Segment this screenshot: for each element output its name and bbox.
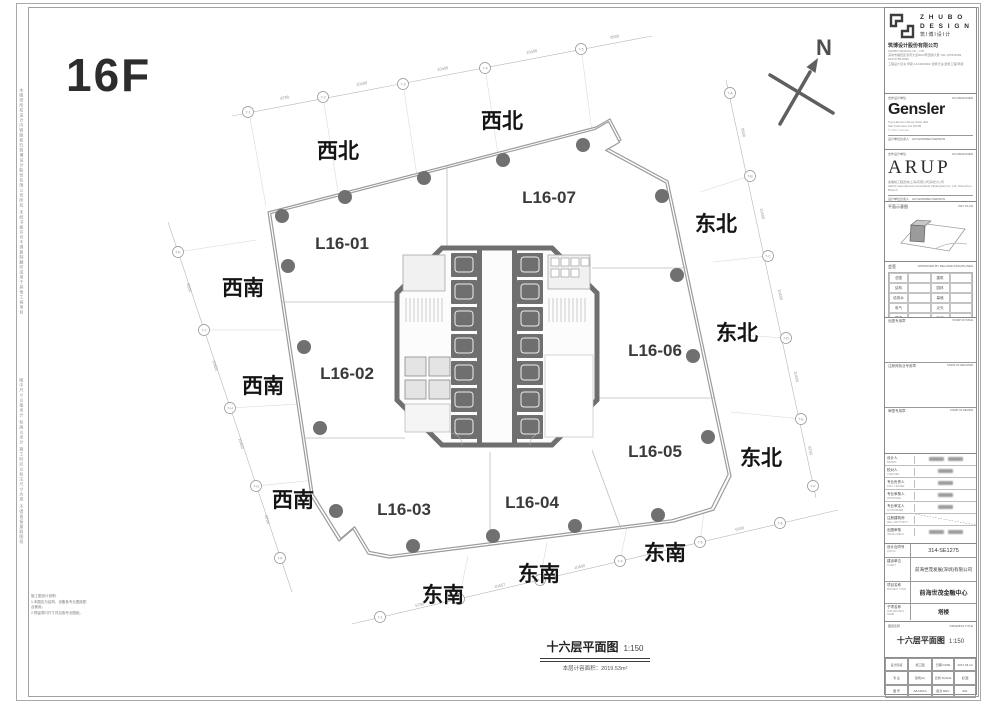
signoff-header: 会签 [888,264,896,270]
dimension-label: 10400 [526,48,539,55]
project-label-en: PROJECT TITLE [887,588,910,591]
core-room [403,255,445,291]
core-corridor-wall [512,250,517,443]
zhubo-address: 深圳市福田区滨河大道9023号国通大厦 TEL:0755-8299 FAX:07… [888,53,973,61]
table-cell-discipline-value: 建筑(A) [908,671,932,684]
keyplan-tower-highlight [910,225,925,242]
signoff-sign-cell [950,293,973,303]
elevator-bank-right [517,253,543,439]
caption-area-value: 2019.53m² [601,666,627,672]
unit-label-l16-06: L16-06 [628,341,682,360]
grid-bubble-label: 7-H [227,407,233,411]
dimension-label: 10400 [211,359,219,372]
client-label-en: CLIENT [887,564,910,567]
job-number-row: 设计合同号JOB No. 314-SE1275 [885,544,976,558]
gensler-header: 合作设计单位 [888,96,906,100]
dimension-label: 8700 [807,446,814,457]
unit-label-l16-05: L16-05 [628,442,682,461]
signature-row: 专业负责人DISC. LEADER [885,478,976,490]
gensler-copyright: © 2017 Gensler [888,128,973,132]
stamp-box-review: 审图专用章STAMP OF REVIEW [885,408,976,453]
signature-row: 专业审核人APPROVER [885,490,976,502]
core-corridor-wall [477,250,482,443]
signoff-sign-cell [908,293,931,303]
stamp-label-en: STAMP OF REVIEW [950,409,973,414]
grid-bubble-label: 7-6 [777,522,782,526]
signoff-cell: 电气 [889,303,908,313]
signature-row: 注册建筑师REG. ARCHITECT [885,514,976,526]
table-cell-date-value: 2017.04.14 [954,658,976,671]
grid-bubble-label: 7-2 [320,96,325,100]
unit-label-l16-07: L16-07 [522,188,576,207]
grid-bubble-label: 7-E [798,418,804,422]
grid-bubble-label: 7-G [253,485,259,489]
caption-scale: 1:150 [623,644,643,653]
title-block: Z H U B O D E S I G N 筑I博I设I计 筑博设计股份有限公司… [884,7,977,695]
titleblock-keyplan-section: 平面示意图 KEY PLAN [885,202,976,262]
signature-handwriting [948,457,963,461]
dimension-label: 8700 [280,94,290,101]
zhubo-brand-line2: D E S I G N [920,23,970,31]
signature-label-en: CHECKED [887,473,914,476]
elevator-bank-left [451,253,477,439]
direction-label-southeast: 东南 [422,583,464,607]
signoff-cell: 建筑 [931,273,950,283]
signoff-sign-cell [908,283,931,293]
subproject-label-en: SUB PROJECT NAME [887,610,910,616]
signoff-cell: 幕墙 [931,293,950,303]
caption-title: 十六层平面图 [546,640,618,654]
dimension-label: 8700 [264,515,272,526]
dimension-label: 10400 [759,208,766,221]
arup-header: 合作设计单位 [888,152,906,156]
titleblock-revision-table: 设计阶段 施工图 日期 DATE 2017.04.14 专 业 建筑(A) 比例… [885,658,976,698]
grid-bubble-label: 7-K [175,251,181,255]
floor-plan-drawing: 7-1 7-2 7-3 7-4 7-5 7-A 7-B 7-C 7-D 7-E … [0,0,884,704]
dimension-label: 10400 [437,65,450,72]
drawing-caption: 十六层平面图1:150 本层计容面积：2019.53m² [500,638,690,672]
direction-label-southeast: 东南 [518,562,560,586]
grid-bubble-label: 7-5 [697,541,702,545]
project-row: 项目名称PROJECT TITLE 前海世茂金融中心 [885,582,976,604]
north-label: N [816,35,832,60]
signoff-sign-cell [950,303,973,313]
gensler-header-en: CO-DESIGNER [952,96,973,100]
titleblock-arup-section: 合作设计单位 CO-DESIGNER ARUP 奥雅纳工程咨询(上海)有限公司深… [885,150,976,202]
unit-label-l16-03: L16-03 [377,500,431,519]
signoff-cell: 结构 [889,283,908,293]
arup-logo: ARUP [888,157,973,179]
dimension-label: 10400 [356,80,369,87]
zhubo-company-name: 筑博设计股份有限公司 [888,42,973,49]
dimension-label: 8500 [610,33,620,40]
signature-handwriting [938,493,953,497]
table-cell-rev-label: 版次 REV. [932,685,954,698]
signature-label-en: DRAWN [887,461,914,464]
signature-label-en: APPROVER [887,497,914,500]
signature-handwriting [938,481,953,485]
signature-row: 专业审定人AUTHORIZER [885,502,976,514]
signature-row: 校对人CHECKED [885,466,976,478]
north-arrow-icon: N [770,35,833,124]
table-cell-discipline-label: 专 业 [885,671,908,684]
grid-bubble-label: 7-3 [400,83,405,87]
grid-bubble-label: 7-J [202,329,207,333]
signoff-header-en: APPROVED BY RELATED DISCIPLINES [918,264,973,270]
gensler-logo: Gensler [888,101,973,119]
grid-bubble-label: 7-C [765,255,771,259]
grid-bubble-label: 7-1 [245,111,250,115]
table-cell-dwgno-label: 图 号 [885,685,908,698]
titleblock-drawing-title-section: 图纸名称 DRAWING TITLE 十六层平面图 1:150 [885,622,976,658]
direction-label-northwest: 西北 [481,110,523,133]
signature-label-en: REG. ARCHITECT [887,521,914,524]
titleblock-zhubo-section: Z H U B O D E S I G N 筑I博I设I计 筑博设计股份有限公司… [885,8,976,94]
drawing-title: 十六层平面图 [897,636,945,645]
stamp-label: 出图专用章 [888,319,906,324]
gensler-resp-label: 设计单位负责人 [888,137,909,141]
stamp-label-en: STAMP OF ISSUE [952,319,973,324]
signoff-cell: 给排水 [889,293,908,303]
signature-handwriting [929,457,944,461]
dimension-label: 10400 [574,563,587,571]
arup-resp-label: 设计单位负责人 [888,197,909,201]
arup-resp-en: AUTHORIZED PERSON [912,197,945,201]
signoff-sign-cell [908,303,931,313]
titleblock-info-section: 设计合同号JOB No. 314-SE1275 建设单位CLIENT 前海世茂发… [885,544,976,622]
gensler-resp-en: AUTHORIZED PERSON [912,137,945,141]
signoff-sign-cell [950,273,973,283]
drawing-scale: 1:150 [949,639,964,645]
signature-row: 出图审核ISSUE CHECK [885,526,976,538]
table-cell-date-label: 日期 DATE [932,658,954,671]
subproject-row: 子项名称SUB PROJECT NAME 塔楼 [885,604,976,620]
job-number-value: 314-SE1275 [911,544,976,557]
titleblock-signoff-section: 会签 APPROVED BY RELATED DISCIPLINES 总图建筑 … [885,262,976,318]
grid-bubble-label: 7-B [747,175,753,179]
signoff-cell: 泛光 [931,303,950,313]
table-cell-dwgno-value: A8-1601A [908,685,932,698]
grid-bubble-label: 7-5 [578,48,583,52]
direction-label-southwest: 西南 [272,488,314,512]
titleblock-signatures-section: 设计人DRAWN 校对人CHECKED 专业负责人DISC. LEADER 专业… [885,454,976,544]
direction-label-northeast: 东北 [716,321,758,345]
signoff-sign-cell [950,283,973,293]
core-lobby-room [545,355,593,437]
table-cell-scale-value: 如 图 [954,671,976,684]
stamp-label: 注册师执业专用章 [888,364,916,369]
caption-area-label: 本层计容面积： [563,666,602,672]
signature-row: 设计人DRAWN [885,454,976,466]
signoff-table: 总图建筑 结构园林 给排水幕墙 电气泛光 暖通标识 [888,272,973,318]
signature-handwriting [948,530,963,534]
signature-handwriting [938,469,953,473]
signature-handwriting [938,505,953,509]
table-cell-stage-value: 施工图 [908,658,932,671]
grid-bubble-label: 7-4 [617,560,622,564]
toilet-room [548,255,590,289]
grid-bubble-label: 7-D [783,337,789,341]
unit-label-l16-04: L16-04 [505,493,559,512]
client-value: 前海世茂发展(深圳)有限公司 [911,558,976,581]
grid-bubble-label: 7-F [277,557,282,561]
direction-label-southwest: 西南 [222,276,264,300]
signature-label-en: AUTHORIZER [887,509,914,512]
unit-label-l16-02: L16-02 [320,364,374,383]
subproject-value: 塔楼 [911,604,976,620]
keyplan-label: 平面示意图 [888,204,908,210]
grid-bubble-label: 7-F [810,485,815,489]
dimension-label: 10400 [793,371,800,384]
signoff-cell: 园林 [931,283,950,293]
dimension-label: 6500 [735,525,746,532]
grid-bubble-label: 7-4 [482,67,487,71]
dimension-label: 10400 [777,289,784,302]
direction-label-southwest: 西南 [242,374,284,398]
stamp-box-register: 注册师执业专用章STAMP OF REGISTER [885,363,976,408]
table-cell-rev-value: 001 [954,685,976,698]
signoff-cell: 总图 [889,273,908,283]
job-number-label-en: JOB No. [887,550,910,553]
zhubo-brand-line1: Z H U B O [920,14,970,22]
drawing-title-header-en: DRAWING TITLE [950,624,973,628]
dimension-label: 8500 [186,283,194,294]
core [397,248,597,445]
zhubo-logo-icon [888,12,916,40]
project-value: 前海世茂金融中心 [911,582,976,603]
titleblock-gensler-section: 合作设计单位 CO-DESIGNER Gensler Two Harrison … [885,94,976,150]
dimension-label: 8500 [740,128,747,139]
grid-bubble-label: 7-1 [377,616,382,620]
signature-label-en: ISSUE CHECK [887,533,914,536]
signature-diagonal-slash [915,514,976,525]
stamp-box-issue: 出图专用章STAMP OF ISSUE [885,318,976,363]
stamp-label: 审图专用章 [888,409,906,414]
grid-bubble-label: 7-A [727,92,733,96]
dimension-label: 10400 [237,437,245,450]
arup-header-en: CO-DESIGNER [952,152,973,156]
keyplan-label-en: KEY PLAN [958,204,973,210]
client-row: 建设单位CLIENT 前海世茂发展(深圳)有限公司 [885,558,976,582]
direction-label-northwest: 西北 [317,140,359,163]
zhubo-brand-cn: 筑I博I设I计 [920,31,970,38]
direction-label-southeast: 东南 [644,541,686,565]
zhubo-certificate: 工程设计证书 甲级 A144003962 建筑行业(建筑工程)甲级 [888,62,973,66]
signoff-sign-cell [908,273,931,283]
table-cell-stage-label: 设计阶段 [885,658,908,671]
table-cell-scale-label: 比例 SCALE [932,671,954,684]
signature-label-en: DISC. LEADER [887,485,914,488]
signature-handwriting [929,530,944,534]
unit-label-l16-01: L16-01 [315,234,369,253]
drawing-title-header: 图纸名称 [888,624,900,628]
stamp-label-en: STAMP OF REGISTER [947,364,973,369]
keyplan-sketch [891,213,971,255]
direction-label-northeast: 东北 [740,446,782,470]
titleblock-stamps-section: 出图专用章STAMP OF ISSUE 注册师执业专用章STAMP OF REG… [885,318,976,454]
direction-label-northeast: 东北 [695,212,737,236]
arup-addr2: ARUP International Consultants (Shanghai… [888,184,973,192]
